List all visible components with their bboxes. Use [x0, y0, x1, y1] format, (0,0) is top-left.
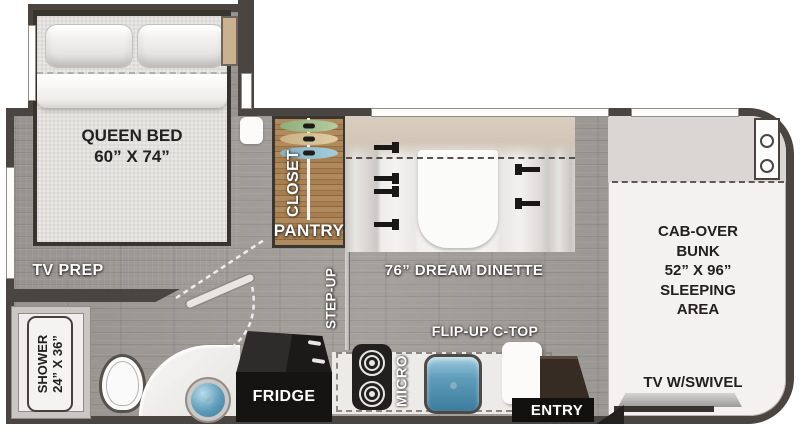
queen-bed-title: QUEEN BED: [81, 125, 182, 146]
seatbelt: [518, 201, 540, 206]
hanger-green: [280, 120, 338, 132]
bunk-dash-line: [612, 181, 784, 183]
dinette-slide-dash: [346, 157, 575, 159]
window: [29, 26, 35, 100]
shower-label: SHOWER 24” X 36”: [27, 316, 73, 412]
shower-title: SHOWER: [35, 335, 50, 394]
burner-icon: [359, 381, 385, 407]
seatbelt: [374, 222, 396, 227]
pantry-label: PANTRY: [272, 219, 346, 243]
step-up-label: STEP-UP: [318, 246, 344, 350]
flip-up-ctop-label: FLIP-UP C-TOP: [405, 323, 565, 339]
seatbelt: [374, 145, 396, 150]
bathroom-sink: [185, 377, 231, 423]
panel-knob-icon: [760, 159, 774, 173]
pillow: [45, 24, 133, 68]
blanket-fold: [37, 74, 227, 108]
dinette-label: 76” DREAM DINETTE: [364, 261, 564, 279]
seatbelt: [374, 189, 396, 194]
closet-label: CLOSET: [282, 146, 306, 220]
window: [632, 109, 738, 116]
micro-label: MICRO: [390, 346, 414, 416]
seatbelt: [374, 176, 396, 181]
door-swing: [150, 226, 300, 366]
cab-line: SLEEPING: [660, 281, 736, 301]
panel-knob-icon: [760, 134, 774, 148]
queen-bed: QUEEN BED 60” X 74”: [33, 10, 231, 246]
tv-base-bar: [614, 406, 714, 412]
cab-over-bunk-label: CAB-OVER BUNK 52” X 96” SLEEPING AREA: [618, 221, 778, 321]
rv-floorplan: QUEEN BED 60” X 74” TV PREP SHOWER 24” X…: [0, 0, 800, 430]
cab-line: 52” X 96”: [665, 261, 732, 281]
queen-bed-label: QUEEN BED 60” X 74”: [37, 124, 227, 168]
tv-unit: [618, 393, 742, 407]
burner-icon: [359, 350, 385, 376]
tv-prep-label: TV PREP: [22, 262, 114, 280]
cab-dash-panel: [754, 118, 780, 180]
cab-line: BUNK: [676, 242, 719, 262]
bathroom-sink-bowl: [191, 383, 225, 417]
hanger-tan: [280, 133, 338, 145]
window: [242, 74, 251, 108]
cab-line: CAB-OVER: [658, 222, 738, 242]
entry-label: ENTRY: [512, 398, 594, 422]
shower-dimensions: 24” X 36”: [50, 335, 65, 393]
flip-up-counter: [502, 342, 542, 404]
queen-bed-dimensions: 60” X 74”: [94, 146, 170, 167]
cab-line: AREA: [677, 300, 720, 320]
cooktop: [352, 344, 392, 410]
step-edge: [345, 238, 350, 350]
window: [7, 168, 14, 278]
window: [372, 109, 608, 116]
dinette-table: [418, 150, 498, 248]
kitchen-sink: [424, 354, 482, 414]
nightstand: [221, 16, 238, 66]
cabinet-endcap: [240, 117, 263, 144]
fridge: FRIDGE: [236, 372, 332, 422]
seatbelt: [518, 167, 540, 172]
pillow: [137, 24, 225, 68]
tv-swivel-label: TV W/SWIVEL: [618, 373, 768, 391]
